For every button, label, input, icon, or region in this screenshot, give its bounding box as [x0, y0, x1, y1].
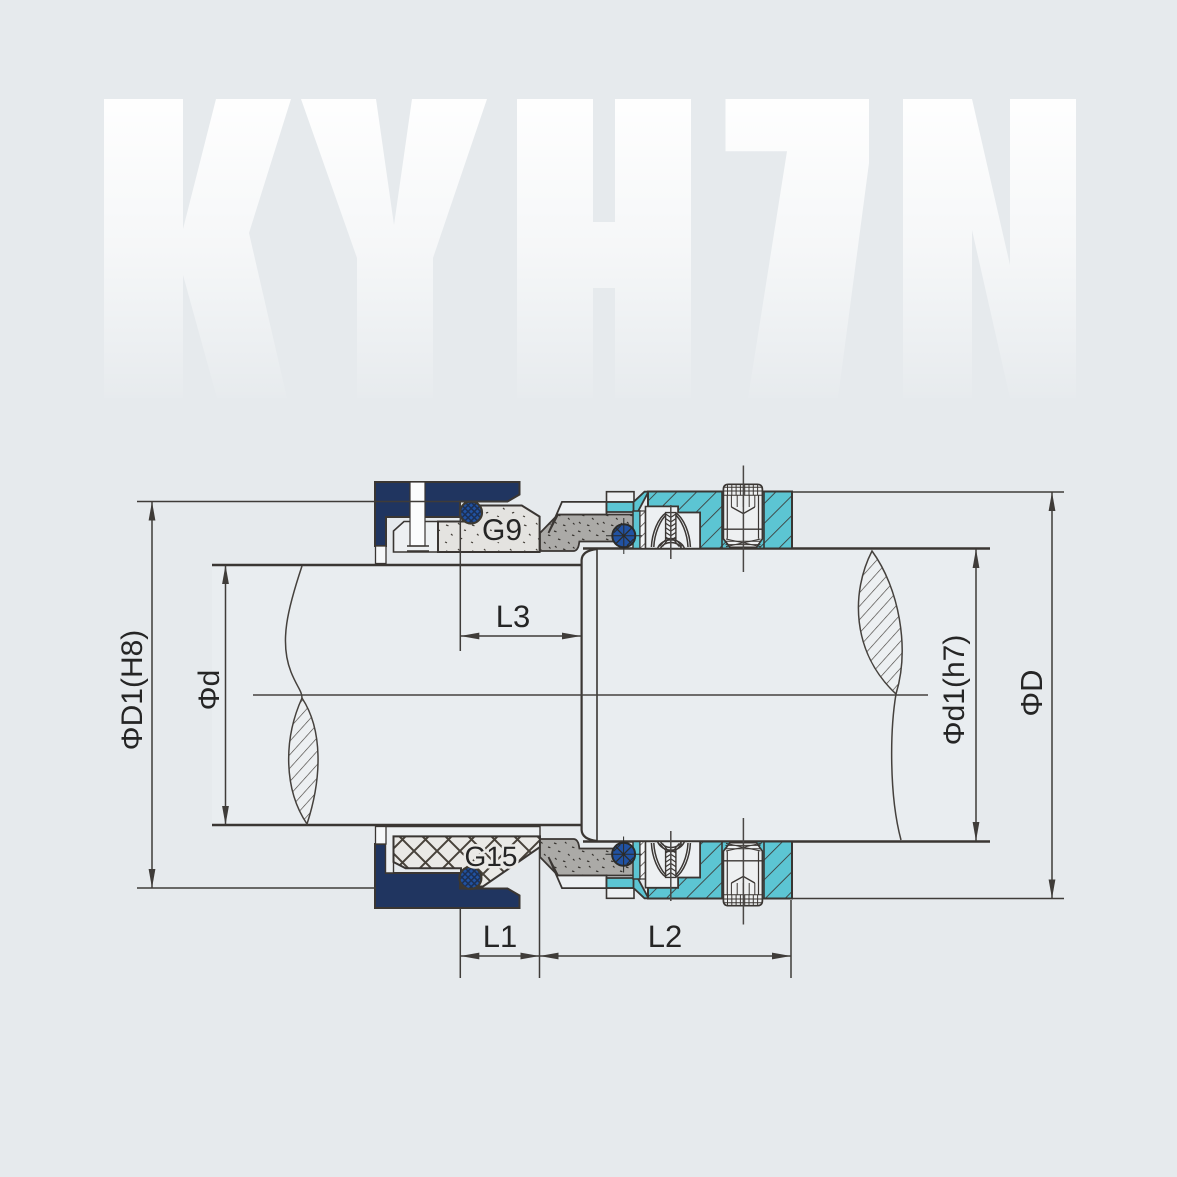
svg-text:ΦD: ΦD — [1014, 669, 1049, 716]
svg-text:Φd: Φd — [193, 670, 226, 711]
svg-text:G9: G9 — [482, 514, 522, 547]
svg-text:L2: L2 — [648, 919, 683, 954]
svg-text:L1: L1 — [483, 919, 518, 954]
svg-text:Φd1(h7): Φd1(h7) — [938, 635, 971, 746]
svg-text:L3: L3 — [496, 599, 531, 634]
svg-text:ΦD1(H8): ΦD1(H8) — [116, 630, 149, 751]
svg-text:G15: G15 — [465, 841, 518, 872]
